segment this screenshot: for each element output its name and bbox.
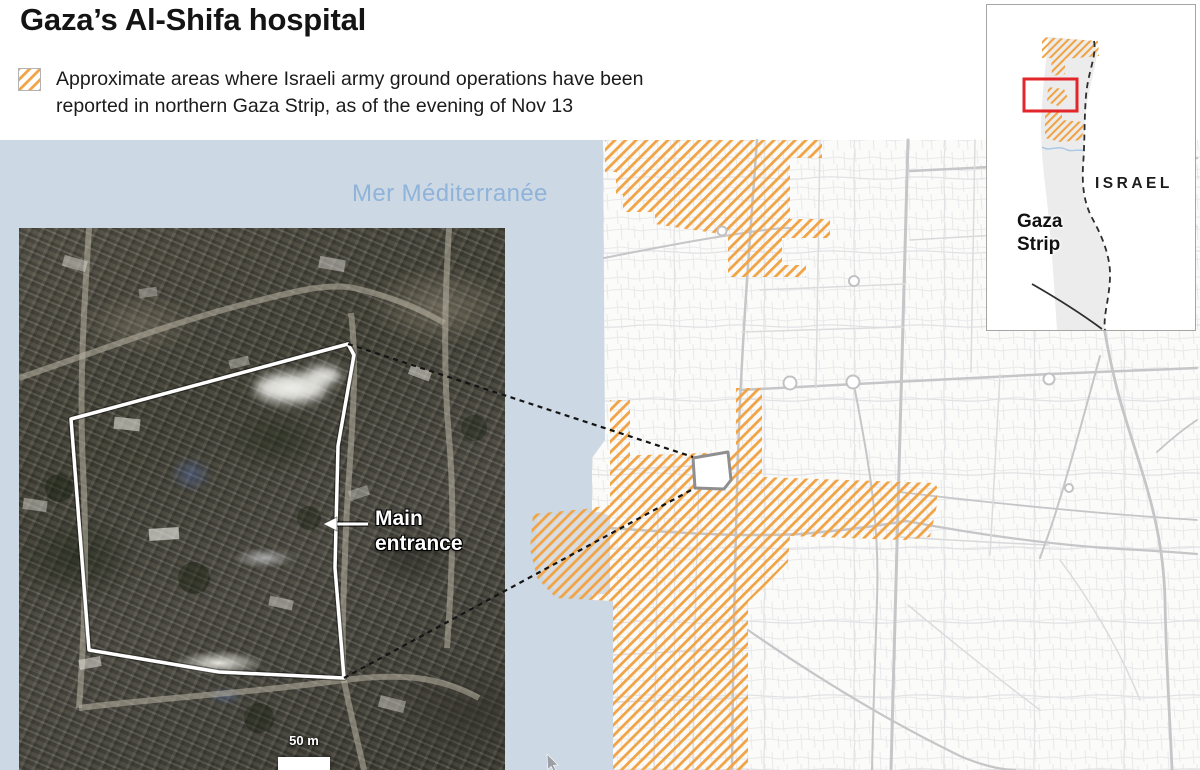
satellite-image: Main entrance 50 m [19,228,505,770]
hatch-coastal-column [610,400,630,458]
sea-label: Mer Méditerranée [352,180,548,208]
mouse-cursor [546,754,564,770]
gaza-label-line-2: Strip [1017,233,1062,256]
scale-bar [278,757,330,770]
main-entrance-line-2: entrance [375,531,463,556]
gaza-strip-label: Gaza Strip [1017,210,1062,256]
hospital-footprint-outline [693,452,731,489]
locator-inset-map: ISRAEL Gaza Strip [986,4,1196,331]
israel-label: ISRAEL [1095,175,1173,193]
satellite-overlay [19,228,505,770]
main-entrance-line-1: Main [375,506,463,531]
infographic: Gaza’s Al-Shifa hospital Approximate are… [0,0,1200,770]
gaza-label-line-1: Gaza [1017,210,1062,233]
scale-bar-label: 50 m [278,733,330,748]
satellite-buildings [22,255,487,733]
main-entrance-label: Main entrance [375,506,463,556]
satellite-roads [19,228,479,770]
locator-map-svg [987,5,1195,330]
smoke-plume [255,365,341,403]
